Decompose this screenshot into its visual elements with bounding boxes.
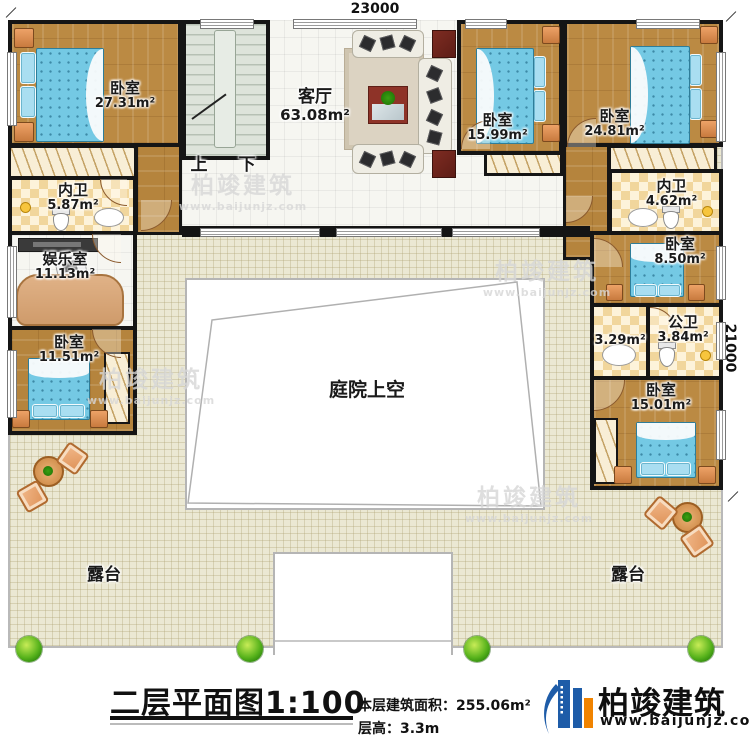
window	[293, 19, 417, 29]
nightstand	[542, 26, 560, 44]
pillow	[32, 404, 58, 418]
nightstand	[688, 284, 705, 301]
side-cabinet	[432, 30, 456, 58]
coffee-table	[368, 86, 408, 124]
bush	[464, 636, 490, 662]
title-underline	[110, 716, 353, 720]
dimension-right: 21000	[722, 318, 738, 378]
room-label-bedroom-top-mid: 卧室15.99m²	[455, 112, 540, 143]
nightstand	[90, 410, 108, 428]
window	[716, 52, 726, 142]
room-label-public-bath: 公卫3.84m²	[646, 314, 720, 345]
stairs-up-label: 上	[186, 156, 212, 175]
room-label-bedroom-left: 卧室11.51m²	[28, 334, 110, 365]
nightstand	[700, 26, 718, 44]
sofa-top	[352, 30, 424, 58]
window	[7, 246, 17, 318]
pillow	[59, 404, 85, 418]
dimension-tick	[726, 11, 737, 22]
stair-stringer	[214, 30, 236, 148]
logo-website: www.baijunjz.com	[600, 713, 750, 729]
pillow	[20, 86, 36, 118]
room-label-bedroom-right-bottom: 卧室15.01m²	[620, 382, 702, 413]
bush	[688, 636, 714, 662]
bottom-notch	[273, 552, 453, 655]
mirror-icon	[20, 202, 31, 213]
sofa-right	[418, 58, 452, 154]
window	[7, 52, 17, 126]
pillow	[20, 52, 36, 84]
window	[452, 228, 540, 237]
window	[465, 19, 507, 29]
blanket	[637, 423, 695, 440]
dimension-tick	[728, 491, 739, 502]
logo-icon	[540, 676, 594, 738]
room-label-vanity: 3.29m²	[592, 334, 648, 349]
nightstand	[14, 122, 34, 142]
room-label-bedroom-right-small: 卧室8.50m²	[640, 236, 720, 267]
pillow	[666, 462, 691, 476]
nightstand	[698, 466, 716, 484]
wardrobe-top-left	[8, 145, 137, 179]
pillow	[533, 56, 546, 88]
courtyard-label: 庭院上空	[307, 380, 427, 401]
pillow	[634, 284, 657, 297]
nightstand	[606, 284, 623, 301]
stairs-down-label: 下	[234, 156, 260, 175]
room-label-bedroom-top-right: 卧室24.81m²	[572, 108, 657, 139]
room-label-bedroom-top-left: 卧室27.31m²	[75, 80, 175, 111]
title-underline-shadow	[110, 723, 353, 725]
room-label-neiwei-top-right: 内卫4.62m²	[634, 178, 709, 209]
nightstand	[614, 466, 632, 484]
floorplan-page: 庭院上空	[0, 0, 750, 745]
dimension-tick	[6, 7, 17, 18]
sofa-bottom	[352, 144, 424, 174]
floor-area-line: 本层建筑面积：255.06m²	[358, 695, 531, 715]
notch-line	[275, 640, 451, 642]
pillow	[640, 462, 665, 476]
window	[636, 19, 700, 29]
room-label-entertainment: 娱乐室11.13m²	[24, 251, 106, 282]
terrace-right-label: 露台	[596, 566, 660, 585]
plant	[381, 91, 395, 105]
floor-height-line: 层高：3.3m	[358, 718, 439, 738]
window	[716, 410, 726, 460]
window	[200, 19, 254, 29]
courtyard: 庭院上空	[185, 278, 545, 510]
pillow	[689, 88, 702, 120]
nightstand	[542, 124, 560, 142]
side-cabinet	[432, 150, 456, 178]
nightstand	[14, 28, 34, 48]
pillow	[689, 54, 702, 86]
terrace-left-label: 露台	[72, 566, 136, 585]
mirror-icon	[700, 350, 711, 361]
window	[336, 228, 442, 237]
bush	[237, 636, 263, 662]
dimension-top: 23000	[340, 1, 410, 17]
window	[200, 228, 320, 237]
pillow	[658, 284, 681, 297]
sink	[628, 208, 658, 227]
room-label-neiwei-top-left: 内卫5.87m²	[38, 182, 108, 213]
window	[7, 350, 17, 418]
room-label-living: 客厅63.08m²	[265, 88, 365, 124]
bush	[16, 636, 42, 662]
